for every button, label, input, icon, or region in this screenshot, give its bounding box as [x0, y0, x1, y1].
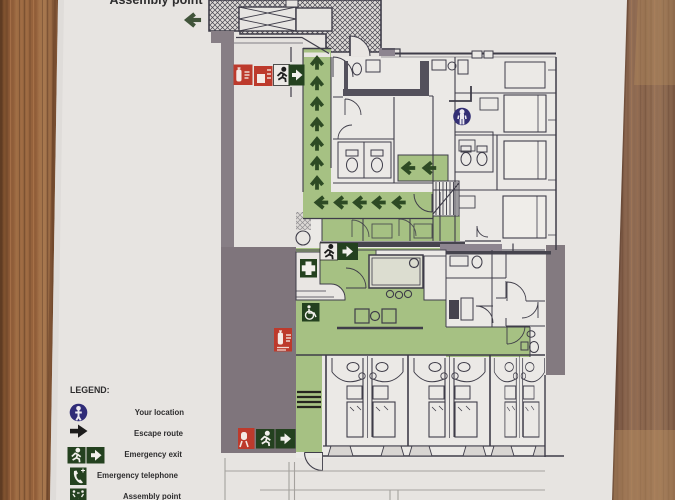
svg-text:Your location: Your location [135, 408, 184, 417]
svg-text:Emergency telephone: Emergency telephone [97, 471, 179, 480]
svg-text:Assembly point: Assembly point [109, 0, 203, 7]
svg-text:Assembly point: Assembly point [123, 492, 181, 500]
svg-text:LEGEND:: LEGEND: [70, 385, 110, 395]
svg-text:Escape route: Escape route [134, 429, 184, 438]
svg-text:Emergency exit: Emergency exit [124, 450, 182, 459]
